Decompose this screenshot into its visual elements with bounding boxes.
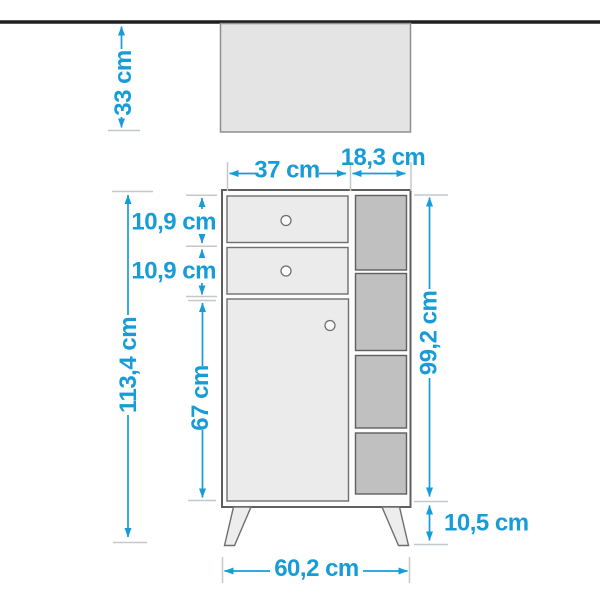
dim-label-overall-width: 60,2 cm	[274, 555, 359, 582]
drawer-middle-knob-icon	[281, 266, 291, 276]
dim-label-shelf-section-width: 18,3 cm	[341, 144, 426, 171]
shelf-cubby-3	[356, 356, 407, 429]
wall-panel	[221, 24, 411, 133]
leg-right	[382, 507, 409, 546]
shelf-cubby-1	[356, 196, 407, 271]
dim-label-drawer-section-width: 37 cm	[254, 157, 320, 184]
cabinet	[222, 190, 411, 546]
drawer-top-knob-icon	[281, 216, 291, 226]
dim-label-door-height: 67 cm	[187, 365, 214, 431]
dim-label-overall-height: 113,4 cm	[115, 317, 142, 413]
dimension-diagram: 33 cm 113,4 cm 10,9 cm 10,9 cm 67 cm 99,…	[0, 0, 600, 600]
dim-label-carcass-height: 99,2 cm	[416, 291, 443, 376]
leg-left	[225, 507, 252, 546]
door-knob-icon	[325, 321, 335, 331]
dim-label-top-drawer: 10,9 cm	[131, 209, 216, 236]
shelf-cubby-4	[356, 433, 407, 494]
dim-label-leg-height: 10,5 cm	[444, 510, 529, 537]
dim-label-wall-clearance: 33 cm	[110, 50, 137, 116]
dim-label-second-drawer: 10,9 cm	[131, 258, 216, 285]
diagram-canvas: 33 cm 113,4 cm 10,9 cm 10,9 cm 67 cm 99,…	[0, 0, 600, 600]
shelf-cubby-2	[356, 274, 407, 351]
